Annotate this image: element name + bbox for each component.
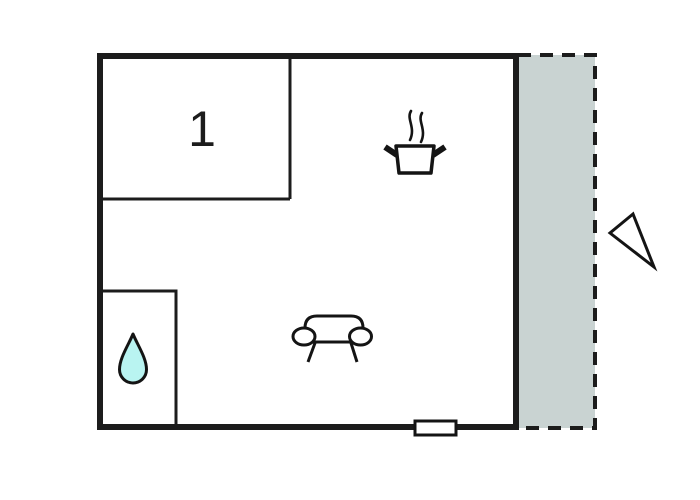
terrace-area <box>518 55 595 428</box>
direction-triangle-icon <box>610 214 654 267</box>
sofa-armrest-right <box>350 328 372 345</box>
floorplan: 1 <box>0 0 700 500</box>
room1-label: 1 <box>188 101 216 157</box>
sofa-armrest-left <box>293 328 315 345</box>
floorplan-canvas: 1 <box>0 0 700 500</box>
door-window-marker <box>415 421 456 435</box>
apartment-outline <box>100 56 516 427</box>
pot-body <box>396 146 434 173</box>
